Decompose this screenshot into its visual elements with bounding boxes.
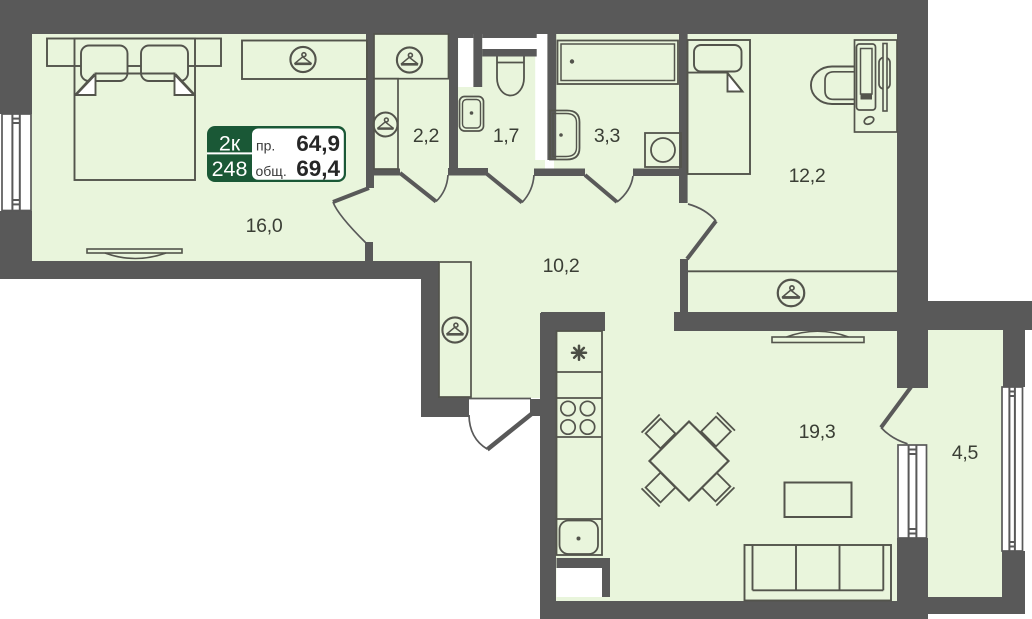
svg-text:69,4: 69,4 — [296, 156, 340, 181]
svg-text:1,7: 1,7 — [493, 125, 519, 147]
svg-text:19,3: 19,3 — [799, 421, 836, 443]
svg-text:2,2: 2,2 — [413, 125, 439, 147]
svg-text:2к: 2к — [219, 131, 241, 155]
svg-text:общ.: общ. — [256, 163, 287, 179]
svg-text:16,0: 16,0 — [246, 215, 283, 237]
svg-text:64,9: 64,9 — [296, 131, 340, 156]
svg-text:12,2: 12,2 — [789, 165, 826, 187]
svg-text:10,2: 10,2 — [543, 255, 580, 277]
svg-text:3,3: 3,3 — [594, 125, 620, 147]
svg-text:4,5: 4,5 — [952, 442, 979, 464]
svg-text:248: 248 — [212, 157, 248, 181]
svg-text:пр.: пр. — [256, 138, 275, 154]
